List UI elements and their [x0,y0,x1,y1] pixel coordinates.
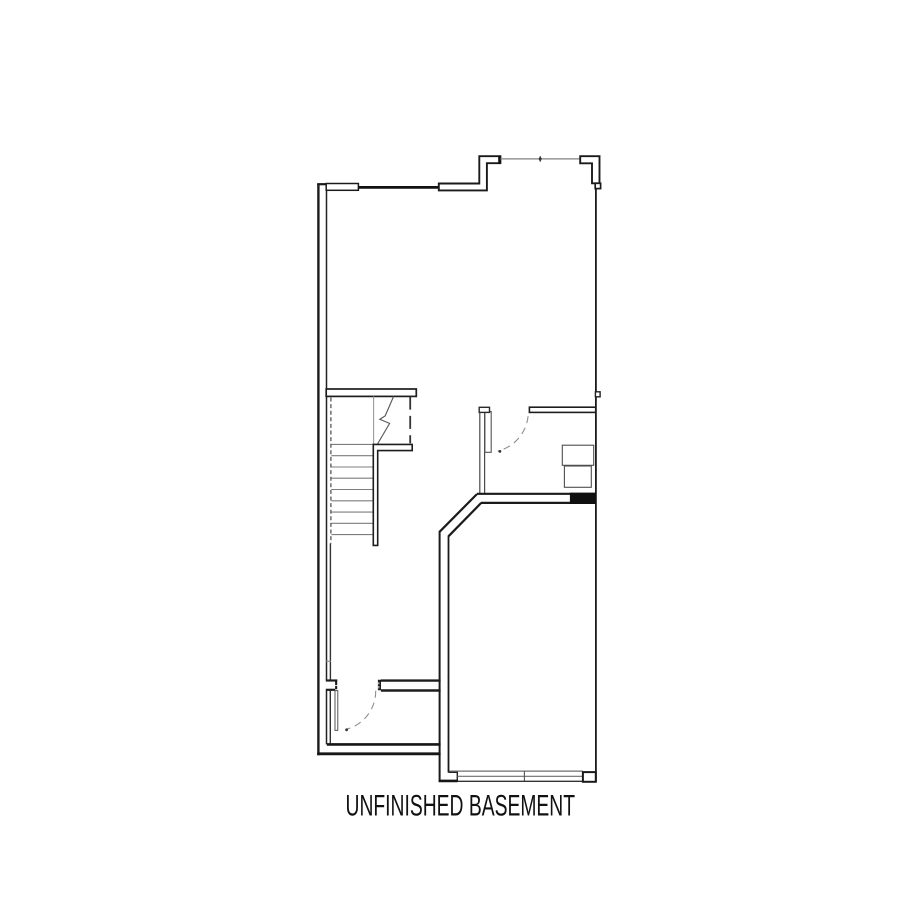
svg-text:UNFINISHED BASEMENT: UNFINISHED BASEMENT [346,789,576,822]
